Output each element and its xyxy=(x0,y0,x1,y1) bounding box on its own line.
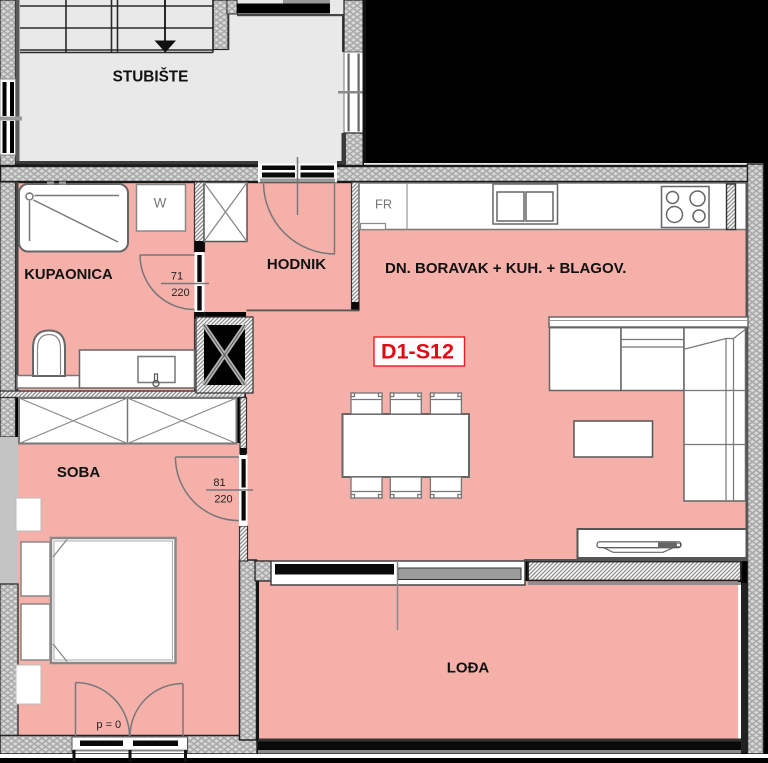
svg-text:220: 220 xyxy=(171,287,189,299)
svg-text:FR: FR xyxy=(375,197,392,212)
svg-text:W: W xyxy=(154,196,167,211)
svg-text:D1-S12: D1-S12 xyxy=(381,340,454,364)
svg-text:220: 220 xyxy=(214,494,232,506)
svg-text:71: 71 xyxy=(171,271,183,283)
svg-text:p = 0: p = 0 xyxy=(96,719,121,731)
svg-text:HODNIK: HODNIK xyxy=(267,256,326,273)
svg-text:STUBIŠTE: STUBIŠTE xyxy=(113,68,189,86)
svg-text:LOĐA: LOĐA xyxy=(447,660,490,677)
svg-text:DN. BORAVAK + KUH. + BLAGOV.: DN. BORAVAK + KUH. + BLAGOV. xyxy=(385,260,626,277)
svg-text:KUPAONICA: KUPAONICA xyxy=(24,267,113,283)
svg-text:SOBA: SOBA xyxy=(57,464,101,481)
svg-text:81: 81 xyxy=(213,477,225,489)
